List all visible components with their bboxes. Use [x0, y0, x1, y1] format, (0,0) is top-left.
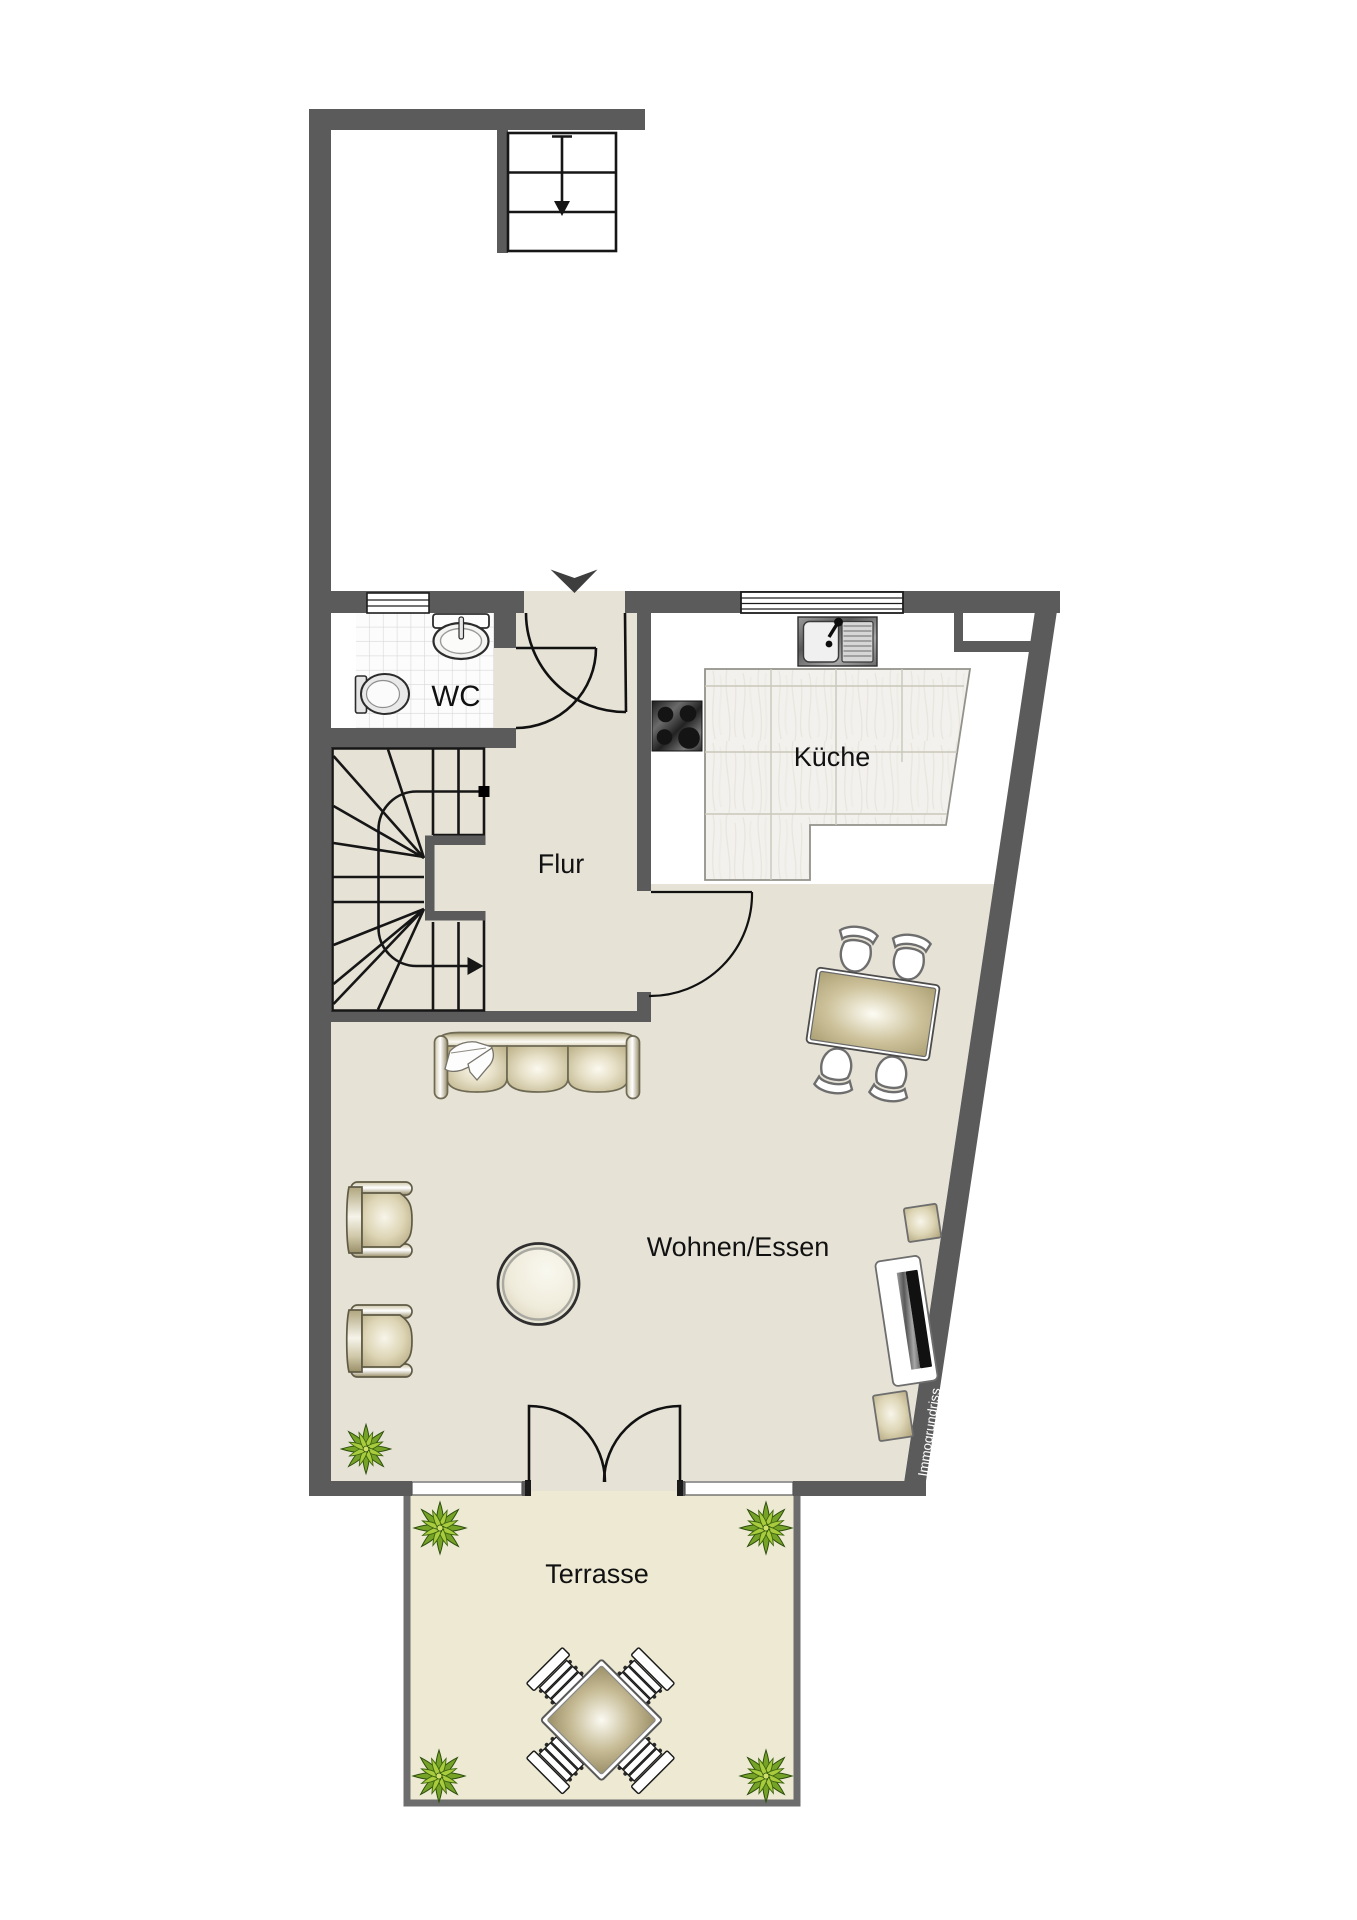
svg-text:Küche: Küche	[794, 742, 871, 772]
svg-text:Terrasse: Terrasse	[545, 1559, 649, 1589]
svg-text:Wohnen/Essen: Wohnen/Essen	[647, 1232, 830, 1262]
svg-text:Flur: Flur	[538, 849, 585, 879]
svg-text:WC: WC	[431, 680, 480, 713]
